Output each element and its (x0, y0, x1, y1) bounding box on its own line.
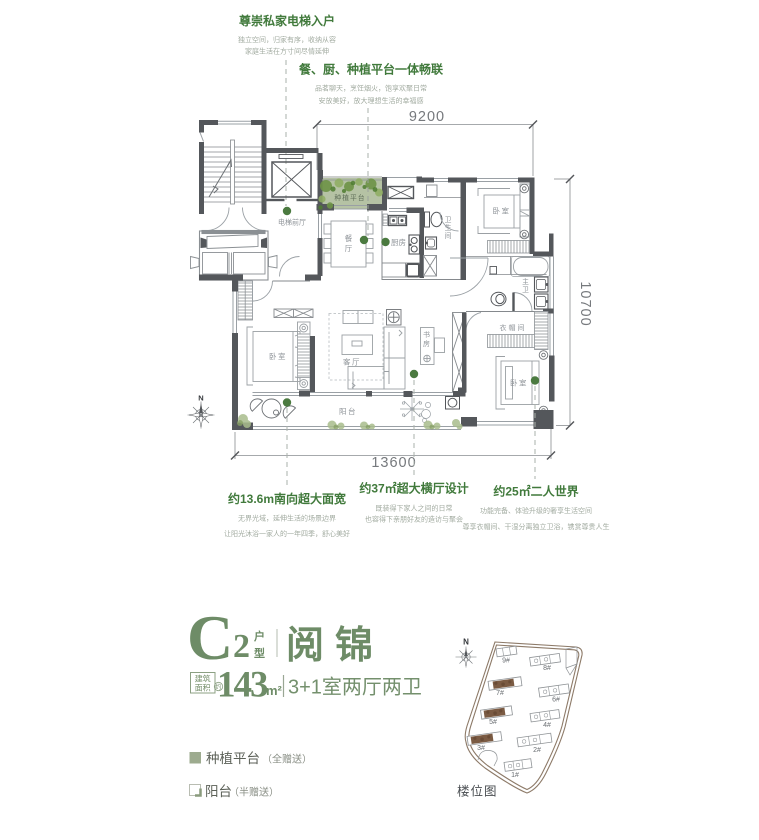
svg-text:客厅: 客厅 (343, 357, 361, 367)
svg-text:楼位图: 楼位图 (457, 784, 498, 799)
svg-text:让阳光沐浴一家人的一年四季，舒心美好: 让阳光沐浴一家人的一年四季，舒心美好 (224, 529, 350, 538)
svg-text:阳台: 阳台 (339, 406, 357, 416)
svg-text:4#: 4# (543, 722, 551, 729)
svg-text:卫生间: 卫生间 (445, 216, 452, 240)
svg-text:约25㎡二人世界: 约25㎡二人世界 (493, 484, 578, 499)
svg-text:无界光域，延伸生活的场景边界: 无界光域，延伸生活的场景边界 (238, 514, 336, 523)
svg-text:C: C (187, 602, 233, 673)
svg-text:餐厅: 餐厅 (345, 234, 353, 253)
svg-text:尊崇私家电梯入户: 尊崇私家电梯入户 (239, 13, 335, 28)
svg-text:N: N (463, 638, 469, 647)
svg-text:功能完备、体验升级的奢享生活空间: 功能完备、体验升级的奢享生活空间 (480, 506, 592, 515)
svg-text:建筑: 建筑 (195, 674, 211, 684)
svg-text:9200: 9200 (409, 109, 445, 125)
svg-text:13600: 13600 (371, 455, 416, 471)
svg-text:1#: 1# (511, 772, 519, 779)
svg-text:既装得下家人之间的日常: 既装得下家人之间的日常 (376, 504, 453, 513)
svg-text:6#: 6# (552, 697, 560, 704)
svg-text:10700: 10700 (577, 281, 593, 326)
svg-text:（全赠送）: （全赠送） (262, 753, 312, 766)
svg-text:卧室: 卧室 (510, 378, 528, 388)
svg-text:安放美好，放大理想生活的幸福感: 安放美好，放大理想生活的幸福感 (319, 96, 424, 105)
svg-text:（半赠送）: （半赠送） (229, 786, 279, 799)
svg-text:约13.6m南向超大面宽: 约13.6m南向超大面宽 (228, 491, 346, 506)
svg-text:衣帽间: 衣帽间 (500, 323, 527, 332)
svg-text:3+1室两厅两卫: 3+1室两厅两卫 (288, 676, 422, 699)
svg-text:143: 143 (217, 665, 268, 706)
svg-text:品茗聊天，烹饪烟火，饱享欢聚日常: 品茗聊天，烹饪烟火，饱享欢聚日常 (315, 84, 427, 93)
svg-text:9#: 9# (502, 658, 510, 665)
svg-text:型: 型 (254, 646, 265, 660)
svg-text:户: 户 (254, 629, 265, 643)
svg-text:面积: 面积 (195, 683, 211, 693)
svg-text:厨房: 厨房 (391, 237, 406, 247)
svg-text:8#: 8# (543, 665, 551, 672)
svg-text:2#: 2# (533, 747, 541, 754)
svg-text:7#: 7# (496, 690, 504, 697)
svg-text:书房: 书房 (423, 330, 430, 348)
svg-text:种植平台: 种植平台 (206, 751, 260, 766)
svg-text:餐、厨、种植平台一体畅联: 餐、厨、种植平台一体畅联 (299, 62, 443, 77)
svg-text:种植平台: 种植平台 (334, 193, 365, 202)
svg-text:独立空间，归家有序，收纳从容: 独立空间，归家有序，收纳从容 (238, 35, 336, 44)
svg-text:卧室: 卧室 (493, 206, 511, 216)
svg-text:N: N (198, 394, 203, 403)
svg-text:主卫: 主卫 (522, 277, 529, 294)
svg-text:阅锦: 阅锦 (286, 625, 384, 667)
svg-text:家庭生活在方寸间尽情延伸: 家庭生活在方寸间尽情延伸 (245, 47, 329, 56)
svg-text:2: 2 (233, 628, 250, 665)
svg-text:5#: 5# (489, 719, 497, 726)
svg-text:m²: m² (266, 683, 283, 698)
svg-text:阳台: 阳台 (205, 784, 232, 799)
svg-text:电梯前厅: 电梯前厅 (278, 218, 306, 227)
svg-text:也容得下亲朋好友的造访与聚会: 也容得下亲朋好友的造访与聚会 (365, 515, 463, 524)
svg-text:约37㎡超大横厅设计: 约37㎡超大横厅设计 (359, 481, 468, 496)
svg-text:尊享衣帽间、干湿分离独立卫浴，镌赏尊贵人生: 尊享衣帽间、干湿分离独立卫浴，镌赏尊贵人生 (463, 522, 610, 531)
svg-text:卧室: 卧室 (269, 351, 287, 361)
